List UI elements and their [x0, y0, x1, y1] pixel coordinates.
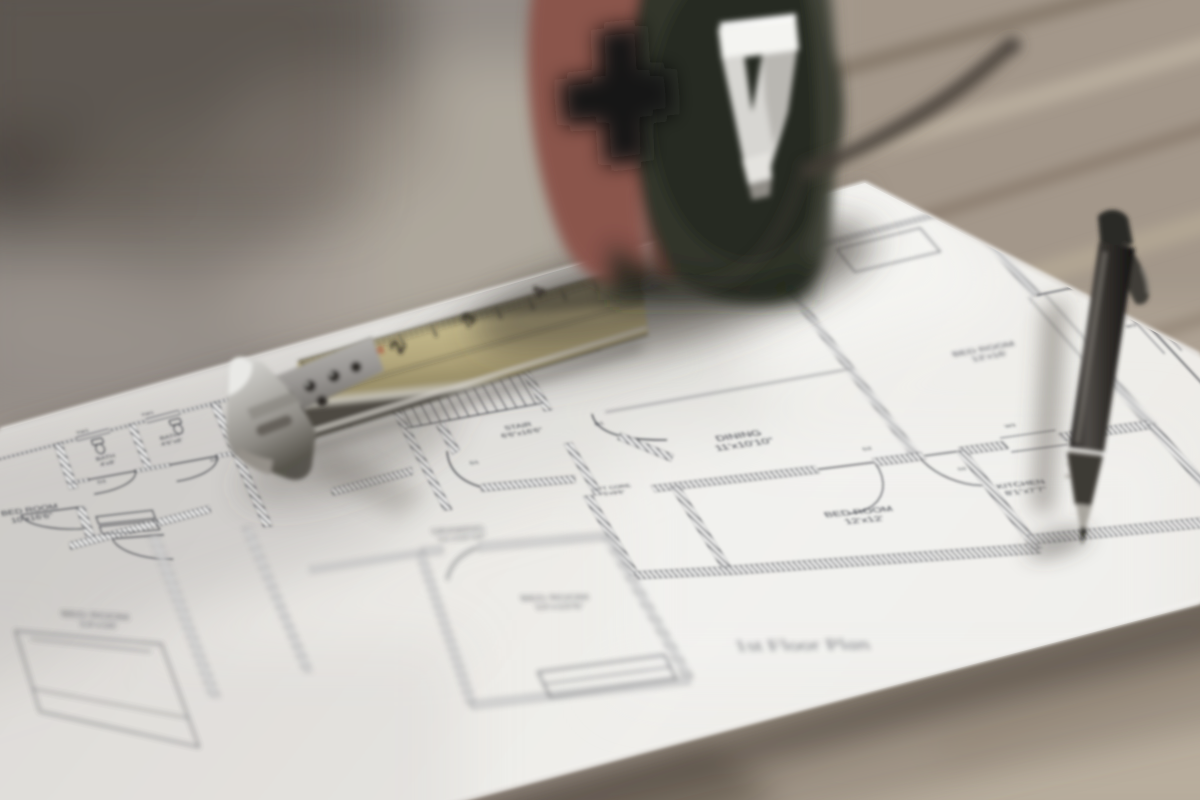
svg-text:10'x10'6": 10'x10'6" [532, 602, 587, 611]
svg-text:BED ROOM: BED ROOM [519, 593, 591, 603]
svg-text:1st Floor Plan: 1st Floor Plan [729, 635, 875, 655]
